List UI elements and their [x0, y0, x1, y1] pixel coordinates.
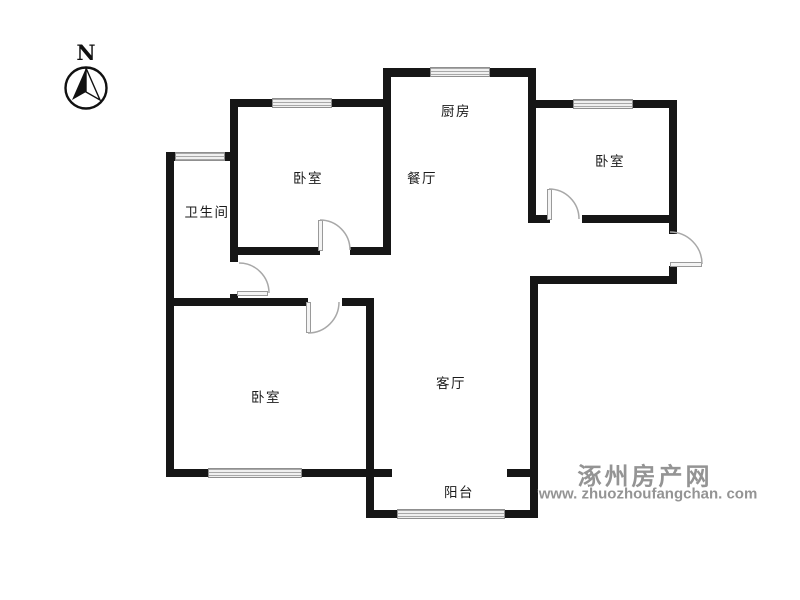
room-label-bedroom-tr: 卧室	[595, 150, 625, 170]
compass-north-icon: N	[58, 38, 118, 118]
room-label-kitchen: 厨房	[441, 100, 471, 120]
door-swing-arcs	[0, 0, 800, 600]
room-label-bedroom-tl: 卧室	[293, 167, 323, 187]
room-label-dining: 餐厅	[407, 167, 437, 187]
door-arc-entrance	[670, 232, 702, 264]
door-arc-bedroom-tr	[549, 189, 579, 219]
door-arc-bedroom-tl	[320, 220, 350, 250]
room-label-living: 客厅	[436, 372, 466, 392]
door-arc-bedroom-bl	[308, 302, 339, 333]
room-label-balcony: 阳台	[444, 481, 474, 501]
floorplan-canvas: N 厨房 餐厅 卧室 卧室 卫生间 卧室 客厅 阳台 涿州房产网 www. zh…	[0, 0, 800, 600]
room-label-bedroom-bl: 卧室	[251, 386, 281, 406]
door-arc-bathroom	[239, 263, 269, 293]
watermark-site-url: www. zhuozhoufangchan. com	[539, 486, 758, 503]
compass-north-label: N	[76, 40, 95, 65]
room-label-bathroom: 卫生间	[185, 201, 230, 221]
